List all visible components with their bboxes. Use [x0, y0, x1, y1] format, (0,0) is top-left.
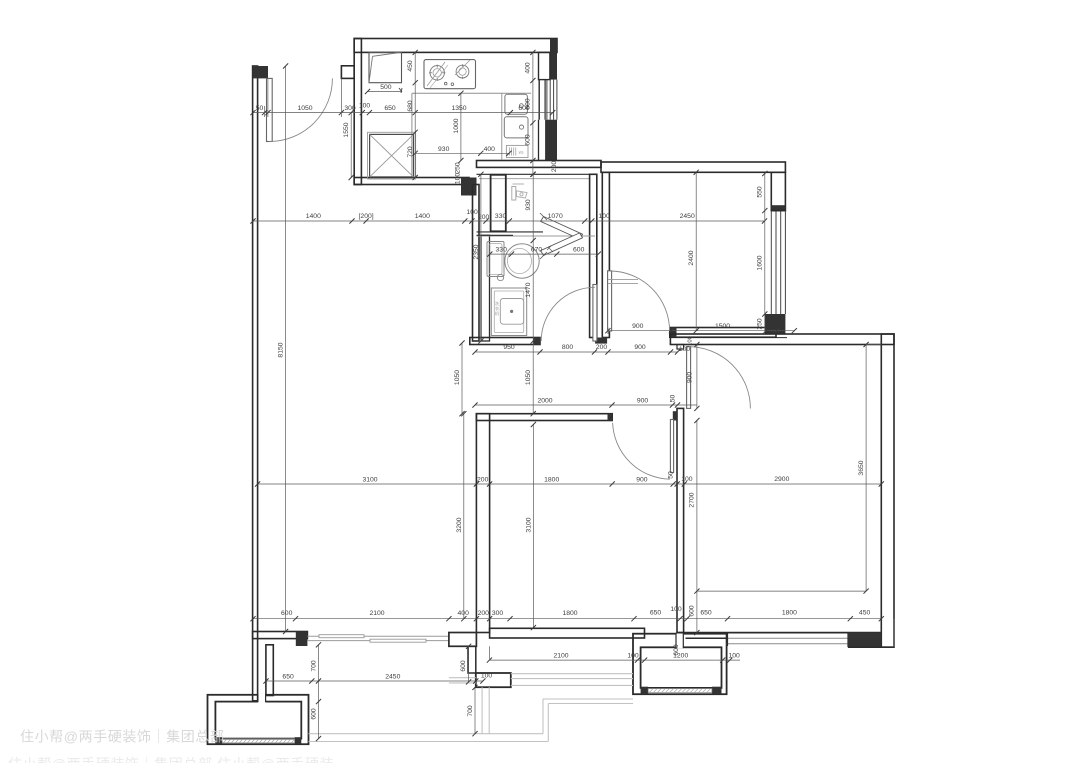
svg-text:2700: 2700 — [689, 492, 696, 507]
svg-text:600: 600 — [525, 134, 532, 146]
svg-text:600: 600 — [460, 660, 467, 672]
svg-text:1550: 1550 — [343, 122, 350, 137]
svg-text:330: 330 — [495, 213, 507, 220]
svg-text:1050: 1050 — [454, 370, 461, 385]
svg-text:300: 300 — [344, 105, 356, 112]
svg-text:1050: 1050 — [525, 370, 532, 385]
svg-text:100: 100 — [454, 173, 461, 185]
svg-text:650: 650 — [700, 610, 712, 617]
svg-text:50: 50 — [256, 105, 264, 112]
svg-text:3650: 3650 — [858, 460, 865, 475]
svg-text:200: 200 — [477, 477, 489, 484]
svg-text:100: 100 — [688, 336, 694, 346]
svg-text:650: 650 — [282, 674, 294, 681]
svg-text:500: 500 — [380, 84, 392, 91]
svg-text:100: 100 — [481, 673, 493, 680]
svg-text:1800: 1800 — [544, 477, 559, 484]
svg-text:2400: 2400 — [688, 250, 695, 265]
svg-text:900: 900 — [634, 344, 646, 351]
svg-text:650: 650 — [650, 610, 662, 617]
svg-text:250: 250 — [454, 162, 461, 174]
svg-text:800: 800 — [562, 344, 574, 351]
svg-text:670: 670 — [531, 247, 543, 254]
svg-text:1350: 1350 — [451, 105, 466, 112]
svg-text:330: 330 — [496, 247, 508, 254]
svg-text:2000: 2000 — [537, 397, 552, 404]
svg-text:1000: 1000 — [453, 118, 460, 133]
svg-text:250: 250 — [757, 318, 764, 330]
svg-text:680: 680 — [407, 100, 414, 112]
svg-text:930: 930 — [525, 199, 532, 211]
svg-text:8150: 8150 — [278, 342, 285, 357]
svg-text:950: 950 — [503, 344, 515, 351]
svg-text:2450: 2450 — [385, 674, 400, 681]
svg-text:1050: 1050 — [297, 105, 312, 112]
svg-text:600: 600 — [573, 247, 585, 254]
svg-text:600: 600 — [311, 708, 318, 720]
svg-text:200: 200 — [478, 610, 490, 617]
svg-text:1600: 1600 — [757, 255, 764, 270]
svg-text:100: 100 — [681, 476, 693, 483]
svg-text:1470: 1470 — [525, 282, 532, 297]
svg-text:100: 100 — [728, 653, 740, 660]
svg-text:400: 400 — [484, 146, 496, 153]
svg-text:700: 700 — [311, 660, 318, 672]
svg-text:200: 200 — [596, 344, 608, 351]
svg-text:930: 930 — [438, 146, 450, 153]
svg-text:200: 200 — [551, 161, 558, 173]
svg-text:600: 600 — [689, 605, 696, 617]
svg-text:900: 900 — [636, 477, 648, 484]
svg-text:550: 550 — [757, 186, 764, 198]
svg-text:600: 600 — [525, 98, 532, 110]
svg-text:100: 100 — [627, 653, 639, 660]
svg-text:900: 900 — [687, 372, 694, 384]
svg-text:住小帮@两手硬装饰｜集团总部 住小帮@两手硬装: 住小帮@两手硬装饰｜集团总部 住小帮@两手硬装 — [8, 756, 334, 763]
svg-text:600: 600 — [281, 610, 293, 617]
svg-text:1500: 1500 — [715, 323, 730, 330]
svg-text:100: 100 — [466, 209, 478, 216]
svg-text:[200]: [200] — [359, 213, 374, 220]
svg-text:3200: 3200 — [456, 517, 463, 532]
svg-text:1400: 1400 — [415, 213, 430, 220]
svg-text:900: 900 — [637, 397, 649, 404]
svg-text:住小帮@两手硬装饰｜集团总部: 住小帮@两手硬装饰｜集团总部 — [20, 729, 225, 745]
svg-text:720: 720 — [407, 146, 414, 158]
svg-text:2450: 2450 — [680, 213, 695, 220]
svg-text:200: 200 — [478, 214, 490, 221]
svg-text:100: 100 — [679, 346, 691, 353]
svg-text:900: 900 — [632, 323, 644, 330]
svg-text:600: 600 — [673, 644, 680, 656]
svg-text:2100: 2100 — [553, 653, 568, 660]
svg-text:3100: 3100 — [525, 517, 532, 532]
svg-text:400: 400 — [525, 62, 532, 74]
svg-text:2100: 2100 — [369, 610, 384, 617]
svg-text:1400: 1400 — [306, 213, 321, 220]
svg-text:1800: 1800 — [782, 610, 797, 617]
svg-text:2900: 2900 — [774, 476, 789, 483]
svg-text:50: 50 — [670, 395, 677, 403]
svg-text:50: 50 — [668, 471, 675, 479]
svg-text:450: 450 — [407, 60, 414, 72]
svg-text:1070: 1070 — [548, 213, 563, 220]
svg-text:700: 700 — [467, 705, 474, 717]
svg-text:1800: 1800 — [562, 610, 577, 617]
svg-text:2350: 2350 — [473, 244, 480, 259]
svg-text:3100: 3100 — [362, 476, 377, 483]
svg-text:450: 450 — [859, 610, 871, 617]
svg-text:¥9: ¥9 — [518, 150, 524, 155]
svg-text:100: 100 — [670, 606, 682, 613]
svg-text:100: 100 — [598, 213, 610, 220]
svg-text:650: 650 — [384, 105, 396, 112]
svg-text:400: 400 — [458, 610, 470, 617]
svg-text:100: 100 — [359, 103, 371, 110]
svg-text:300: 300 — [492, 610, 504, 617]
